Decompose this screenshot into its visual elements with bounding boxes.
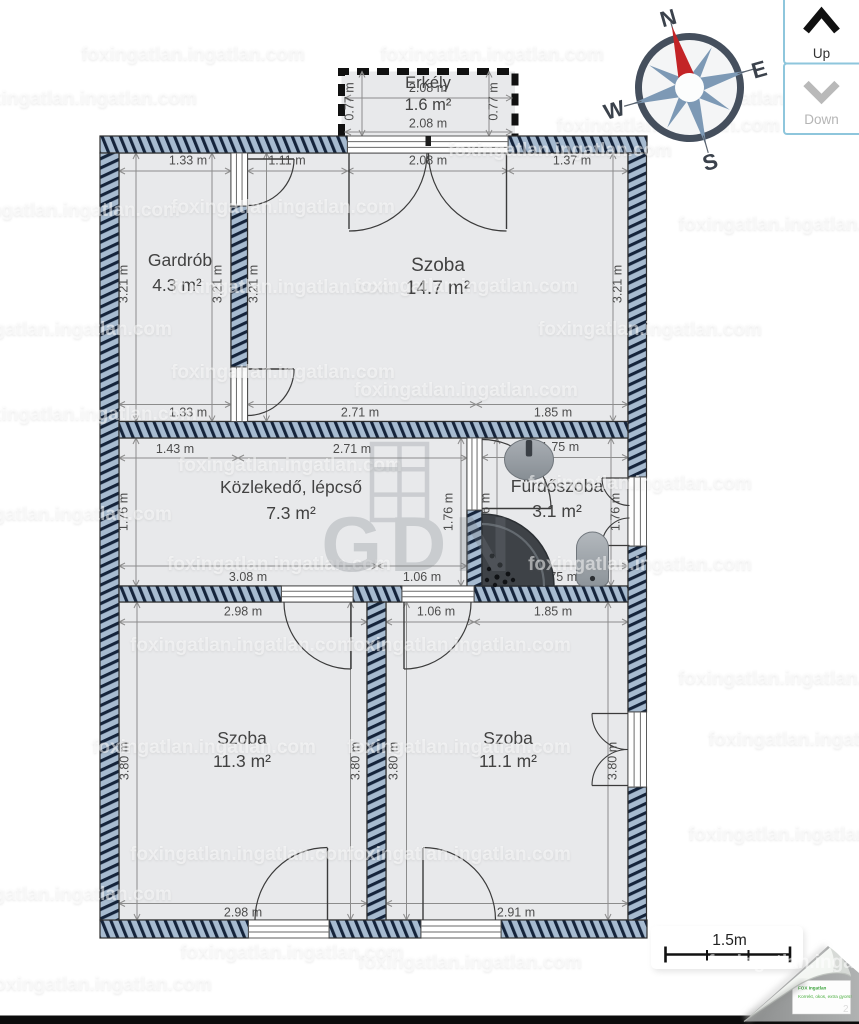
svg-text:3.1 m²: 3.1 m² — [532, 501, 582, 521]
svg-text:foxingatlan.ingatlan.com: foxingatlan.ingatlan.com — [0, 884, 172, 905]
svg-text:foxingatlan.ingatlan.com: foxingatlan.ingatlan.com — [380, 44, 604, 65]
svg-text:foxingatlan.ingatlan.com: foxingatlan.ingatlan.com — [81, 44, 305, 65]
svg-text:0.77 m: 0.77 m — [343, 82, 357, 120]
svg-text:GDN: GDN — [321, 500, 518, 588]
svg-text:foxingatlan.ingatlan.com: foxingatlan.ingatlan.com — [528, 554, 752, 575]
svg-text:Korrekt, okos, extra gyors!: Korrekt, okos, extra gyors! — [798, 994, 852, 999]
svg-text:foxingatlan.ingatlan.com: foxingatlan.ingatlan.com — [347, 635, 571, 656]
svg-text:foxingatlan.ingatlan.com: foxingatlan.ingatlan.com — [448, 140, 672, 161]
svg-text:Szoba: Szoba — [411, 255, 465, 276]
svg-text:foxingatlan.ingatlan.com: foxingatlan.ingatlan.com — [347, 844, 571, 865]
svg-text:Gardrób: Gardrób — [148, 250, 212, 270]
svg-text:2.98 m: 2.98 m — [224, 605, 262, 619]
svg-text:foxingatlan.ingatlan.com: foxingatlan.ingatlan.com — [708, 952, 859, 973]
svg-text:1.6 m²: 1.6 m² — [405, 96, 452, 114]
svg-text:foxingatlan.ingatlan.com: foxingatlan.ingatlan.com — [538, 319, 762, 340]
svg-text:Down: Down — [804, 112, 839, 127]
svg-text:foxingatlan.ingatlan.com: foxingatlan.ingatlan.com — [0, 404, 197, 425]
svg-text:2.71 m: 2.71 m — [333, 442, 371, 456]
svg-text:3.21 m: 3.21 m — [611, 265, 625, 303]
svg-text:foxingatlan.ingatlan.com: foxingatlan.ingatlan.com — [354, 380, 578, 401]
svg-text:0.77 m: 0.77 m — [487, 82, 501, 120]
svg-text:1.85 m: 1.85 m — [534, 605, 572, 619]
svg-text:1.43 m: 1.43 m — [156, 442, 194, 456]
svg-text:foxingatlan.ingatlan.com: foxingatlan.ingatlan.com — [0, 319, 172, 340]
svg-text:foxingatlan.ingatlan.com: foxingatlan.ingatlan.com — [528, 473, 752, 494]
svg-text:7.3 m²: 7.3 m² — [266, 503, 316, 523]
svg-text:foxingatlan.ingatlan.com: foxingatlan.ingatlan.com — [0, 88, 197, 109]
svg-text:1.33 m: 1.33 m — [169, 154, 207, 168]
svg-text:1.85 m: 1.85 m — [534, 406, 572, 420]
svg-text:2.08 m: 2.08 m — [409, 117, 447, 131]
svg-text:Közlekedő, lépcső: Közlekedő, lépcső — [220, 477, 362, 497]
svg-text:foxingatlan.ingatlan.com: foxingatlan.ingatlan.com — [171, 197, 395, 218]
svg-text:Erkély: Erkély — [405, 74, 452, 92]
svg-text:foxingatlan.ingatlan.com: foxingatlan.ingatlan.com — [347, 737, 571, 758]
svg-text:foxingatlan.ingatlan.com: foxingatlan.ingatlan.com — [708, 729, 859, 750]
svg-text:foxingatlan.ingatlan.com: foxingatlan.ingatlan.com — [688, 824, 859, 845]
svg-text:2.91 m: 2.91 m — [497, 906, 535, 920]
svg-text:Up: Up — [813, 46, 830, 61]
svg-text:foxingatlan.ingatlan.com: foxingatlan.ingatlan.com — [178, 455, 402, 476]
svg-text:2: 2 — [843, 1004, 849, 1015]
svg-text:1.11 m: 1.11 m — [268, 154, 305, 168]
svg-text:foxingatlan.ingatlan.com: foxingatlan.ingatlan.com — [130, 635, 354, 656]
svg-text:foxingatlan.ingatlan.com: foxingatlan.ingatlan.com — [0, 200, 180, 221]
svg-text:foxingatlan.ingatlan.com: foxingatlan.ingatlan.com — [678, 668, 859, 689]
svg-text:foxingatlan.ingatlan.com: foxingatlan.ingatlan.com — [678, 214, 859, 235]
svg-text:1.5m: 1.5m — [712, 932, 746, 949]
svg-text:foxingatlan.ingatlan.com: foxingatlan.ingatlan.com — [0, 504, 172, 525]
svg-text:foxingatlan.ingatlan.com: foxingatlan.ingatlan.com — [130, 844, 354, 865]
svg-text:foxingatlan.ingatlan.com: foxingatlan.ingatlan.com — [92, 737, 316, 758]
svg-text:foxingatlan.ingatlan.com: foxingatlan.ingatlan.com — [358, 952, 582, 973]
svg-text:2.71 m: 2.71 m — [341, 406, 379, 420]
svg-text:foxingatlan.ingatlan.com: foxingatlan.ingatlan.com — [0, 974, 212, 995]
svg-text:1.06 m: 1.06 m — [417, 605, 455, 619]
svg-text:foxingatlan.ingatlan.com: foxingatlan.ingatlan.com — [354, 276, 578, 297]
